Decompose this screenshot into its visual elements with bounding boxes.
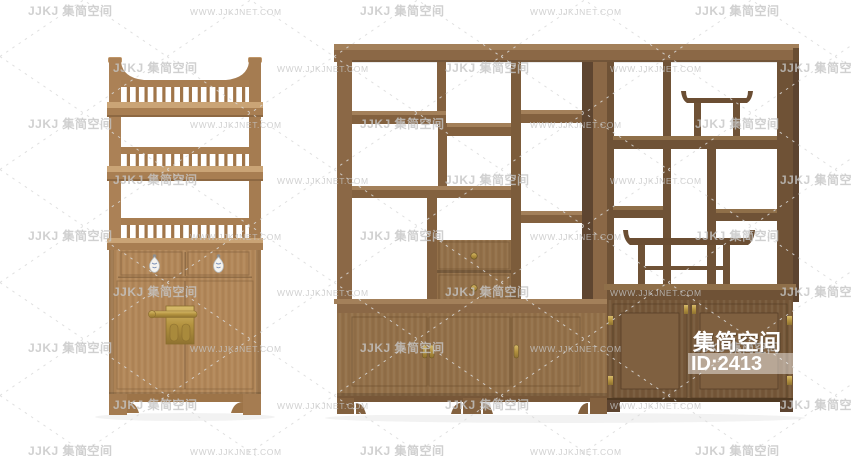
door-panel: [700, 313, 778, 389]
spindle: [242, 225, 245, 238]
spindle: [189, 225, 192, 238]
top-rail-side: [793, 48, 799, 62]
spindle: [162, 225, 165, 238]
spindle: [215, 225, 218, 238]
drawer-stack: [437, 240, 511, 303]
shelf: [352, 111, 446, 124]
spindle: [153, 87, 156, 102]
divider: [707, 149, 716, 286]
product-image: JJKJ 集简空间WWW.JJKJNET.COMJJKJ 集简空间WWW.JJK…: [0, 0, 851, 456]
spindle: [145, 225, 148, 238]
leg: [607, 400, 620, 412]
spindle: [127, 154, 130, 166]
edge-shade: [337, 393, 607, 396]
drawer-knob: [471, 285, 477, 291]
display-shelf-figure: [334, 44, 799, 415]
spindle: [207, 87, 210, 102]
spindle: [224, 225, 227, 238]
outer-post: [607, 62, 614, 302]
furniture-layer: [0, 0, 851, 456]
spindle: [153, 154, 156, 166]
edge-shade: [352, 60, 793, 63]
spindle: [189, 154, 192, 166]
crest-curve: [121, 62, 144, 80]
left-cabinet-figure: [107, 57, 263, 415]
divider: [663, 62, 671, 137]
spindle: [189, 87, 192, 102]
spindle: [215, 154, 218, 166]
leg: [337, 398, 354, 414]
spindle: [171, 225, 174, 238]
shelf: [521, 211, 582, 223]
door-pull: [170, 324, 178, 341]
apron-cutout: [483, 403, 588, 415]
right-post: [249, 58, 261, 240]
divider: [437, 62, 446, 112]
apron-spandrel: [127, 402, 139, 413]
spindle: [136, 225, 139, 238]
spindle: [233, 154, 236, 166]
groove: [185, 252, 187, 276]
display-stand: [681, 91, 753, 137]
door-panel: [621, 313, 679, 389]
divider: [663, 149, 671, 286]
spindle: [198, 87, 201, 102]
leg: [590, 398, 607, 414]
door-pull: [514, 345, 519, 358]
leg: [243, 394, 261, 415]
spindle: [136, 154, 139, 166]
spindle: [171, 154, 174, 166]
door-pull: [182, 324, 190, 341]
spindle: [162, 154, 165, 166]
shelf: [446, 123, 511, 136]
spindle-railing: [127, 87, 245, 102]
spindle: [215, 87, 218, 102]
spindle: [180, 225, 183, 238]
spindle: [136, 87, 139, 102]
spindle: [153, 225, 156, 238]
spindle: [171, 87, 174, 102]
leg: [109, 394, 127, 415]
display-stand: [623, 230, 755, 286]
apron-spandrel: [231, 402, 243, 413]
spindle: [145, 154, 148, 166]
shelf-board: [107, 166, 263, 181]
outer-post: [337, 62, 352, 314]
hinge: [787, 376, 792, 385]
groove: [118, 277, 252, 279]
railing-top-rail: [121, 147, 249, 154]
divider: [438, 123, 447, 187]
spindle: [242, 154, 245, 166]
door-pull: [692, 305, 696, 314]
spindle: [180, 154, 183, 166]
shelf-board: [107, 102, 263, 117]
crest-curve: [226, 62, 249, 80]
door-pull: [430, 345, 435, 358]
leg: [463, 398, 481, 414]
spindle: [233, 225, 236, 238]
edge-shade: [256, 250, 261, 398]
cabinet-top-board: [107, 238, 263, 250]
spindle: [233, 87, 236, 102]
spindle: [145, 87, 148, 102]
shelf: [613, 206, 663, 218]
shelf: [521, 110, 582, 123]
spindle: [224, 154, 227, 166]
post-side-face: [793, 62, 799, 302]
shelf: [716, 209, 777, 221]
apron-cutout: [356, 403, 461, 415]
lock-pin-knob: [148, 311, 155, 318]
spindle: [207, 225, 210, 238]
divider: [427, 198, 437, 303]
leg: [780, 400, 793, 412]
plinth-rail: [607, 398, 793, 402]
cabinet-top-board: [334, 299, 610, 304]
outer-post: [593, 62, 607, 314]
groove: [437, 270, 511, 273]
left-post: [109, 58, 121, 240]
cabinet-top-board: [604, 284, 796, 290]
spindle: [242, 87, 245, 102]
spindle-railing: [127, 154, 245, 166]
door-pull: [423, 345, 428, 358]
spindle: [162, 87, 165, 102]
base-cabinet: [334, 299, 610, 415]
spindle-railing: [127, 225, 245, 238]
railing-top-rail: [121, 218, 249, 225]
edge-shade: [109, 392, 261, 394]
door-pull: [684, 305, 688, 314]
outer-post: [777, 62, 793, 302]
divider: [511, 62, 521, 303]
spindle: [198, 154, 201, 166]
spindle: [127, 225, 130, 238]
base-cabinet: [604, 284, 796, 412]
railing-top-rail: [121, 80, 249, 87]
hinge: [608, 316, 613, 325]
edge-shade: [109, 250, 114, 398]
hinge: [787, 316, 792, 325]
spindle: [127, 87, 130, 102]
shelf: [352, 186, 511, 198]
apron: [127, 394, 243, 402]
hinge: [608, 376, 613, 385]
spindle: [180, 87, 183, 102]
shelf: [613, 136, 777, 149]
top-rail-top: [334, 44, 799, 50]
spindle: [224, 87, 227, 102]
lock-pin-bar: [152, 311, 197, 318]
spindle: [207, 154, 210, 166]
drawer-knob: [471, 253, 477, 259]
compartment-depth: [582, 62, 593, 303]
spindle: [198, 225, 201, 238]
